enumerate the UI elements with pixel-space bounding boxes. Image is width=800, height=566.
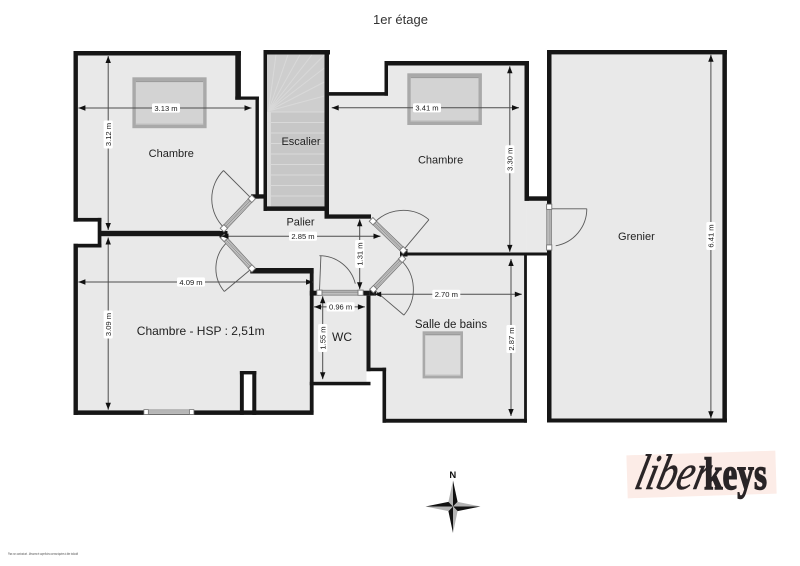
svg-text:4.09 m: 4.09 m: [179, 278, 202, 287]
svg-text:Chambre: Chambre: [149, 148, 194, 160]
svg-text:Chambre - HSP : 2,51m: Chambre - HSP : 2,51m: [137, 324, 265, 338]
svg-text:6.41 m: 6.41 m: [707, 224, 716, 247]
svg-text:Plan non contractuel - Mesures: Plan non contractuel - Mesures et superf…: [8, 552, 78, 556]
svg-text:3.30 m: 3.30 m: [506, 148, 515, 171]
svg-text:1.55 m: 1.55 m: [319, 326, 328, 349]
svg-text:2.85 m: 2.85 m: [291, 232, 314, 241]
svg-text:Escalier: Escalier: [281, 136, 320, 148]
svg-text:2.87 m: 2.87 m: [507, 327, 516, 350]
svg-text:Chambre: Chambre: [418, 155, 463, 167]
svg-text:WC: WC: [332, 330, 352, 344]
svg-text:0.96 m: 0.96 m: [329, 303, 352, 312]
svg-text:3.09 m: 3.09 m: [104, 313, 113, 336]
svg-text:Palier: Palier: [286, 217, 314, 229]
svg-text:1er étage: 1er étage: [373, 12, 428, 27]
svg-text:Salle de bains: Salle de bains: [415, 319, 487, 331]
svg-text:Grenier: Grenier: [618, 231, 655, 243]
svg-text:3.13 m: 3.13 m: [154, 104, 177, 113]
svg-text:2.70 m: 2.70 m: [435, 290, 458, 299]
svg-text:N: N: [449, 470, 456, 481]
svg-text:3.41 m: 3.41 m: [415, 104, 438, 113]
svg-text:keys: keys: [704, 449, 767, 499]
svg-text:1.31 m: 1.31 m: [356, 242, 365, 265]
svg-text:3.12 m: 3.12 m: [104, 123, 113, 146]
